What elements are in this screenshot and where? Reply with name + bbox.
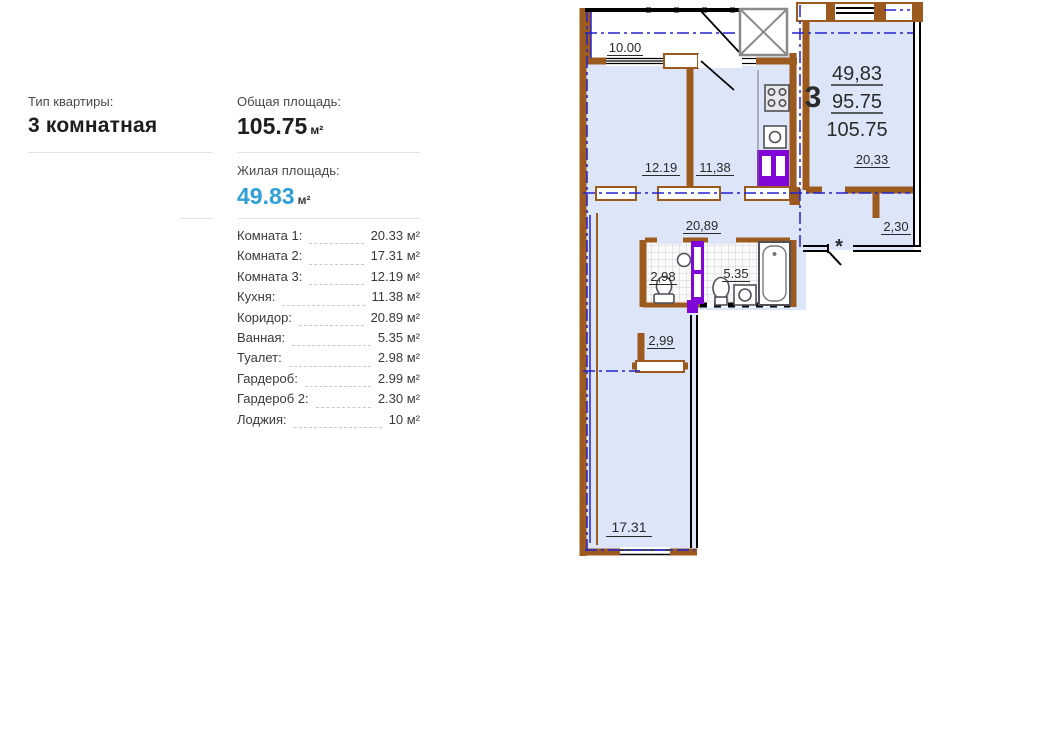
apartment-type-label: Тип квартиры:: [28, 94, 113, 109]
divider: [237, 152, 420, 153]
room-area-row: Комната 3:12.19 м²: [237, 269, 420, 289]
room-area-row: Гардероб 2:2.30 м²: [237, 391, 420, 411]
room-area-row: Лоджия:10 м²: [237, 412, 420, 432]
heated-area-plan-label: 95.75: [832, 91, 882, 113]
loggia-area-label: 10.00: [609, 40, 642, 55]
room-value: 2.30 м²: [378, 391, 420, 406]
room-area-row: Туалет:2.98 м²: [237, 350, 420, 370]
dot-leader: [316, 407, 371, 408]
dot-leader: [309, 243, 363, 244]
room-label: Лоджия:: [237, 412, 287, 427]
room1-area-label: 20,33: [856, 152, 889, 167]
total-area-value: 105.75м²: [237, 113, 323, 140]
room-value: 5.35 м²: [378, 330, 420, 345]
kitchen-sink-icon: [764, 126, 786, 148]
dot-leader: [305, 386, 371, 387]
corner-sink-icon: [678, 254, 691, 267]
flat-number-label: 3: [805, 81, 822, 114]
room-value: 2.98 м²: [378, 350, 420, 365]
shaft-square: [740, 9, 787, 55]
room-label: Комната 1:: [237, 228, 302, 243]
living-area-value: 49.83м²: [237, 183, 310, 210]
room-label: Гардероб:: [237, 371, 298, 386]
dot-leader: [309, 264, 363, 265]
room-area-row: Кухня:11.38 м²: [237, 289, 420, 309]
floor-plan: 10.00 12.19 11,38 20,89 2,98 5.35 2,99 1…: [575, 0, 925, 578]
wardrobe2-area-label: 2,30: [883, 219, 908, 234]
room-label: Кухня:: [237, 289, 275, 304]
dot-leader: [294, 427, 382, 428]
total-area-unit: м²: [310, 123, 323, 137]
room-area-row: Коридор:20.89 м²: [237, 310, 420, 330]
room-value: 17.31 м²: [371, 248, 420, 263]
stove-icon: [765, 85, 789, 111]
corridor-door: [687, 300, 698, 313]
room-value: 10 м²: [389, 412, 420, 427]
dot-leader: [299, 325, 364, 326]
door-sill: [636, 361, 684, 372]
divider: [28, 152, 213, 153]
room-value: 2.99 м²: [378, 371, 420, 386]
room-value: 12.19 м²: [371, 269, 420, 284]
room-value: 20.89 м²: [371, 310, 420, 325]
room-label: Комната 3:: [237, 269, 302, 284]
living-area-plan-label: 49,83: [832, 63, 882, 85]
room-label: Коридор:: [237, 310, 292, 325]
divider: [237, 218, 420, 219]
bath-area-label: 5.35: [723, 266, 748, 281]
total-area-plan-label: 105.75: [826, 119, 887, 141]
washer-icon: [734, 285, 756, 305]
room-area-row: Ванная:5.35 м²: [237, 330, 420, 350]
dot-leader: [309, 284, 363, 285]
room-label: Комната 2:: [237, 248, 302, 263]
room-areas-list: Комната 1:20.33 м²Комната 2:17.31 м²Комн…: [237, 228, 420, 432]
room-value: 20.33 м²: [371, 228, 420, 243]
corridor-area-label: 20,89: [686, 218, 719, 233]
living-area-label: Жилая площадь:: [237, 163, 340, 178]
apartment-type-value: 3 комнатная: [28, 114, 157, 138]
toilet-area-label: 2,98: [650, 269, 675, 284]
bottom-window: [620, 547, 670, 558]
room-area-row: Комната 2:17.31 м²: [237, 248, 420, 268]
kitchen-area-label: 11,38: [699, 160, 731, 175]
dot-leader: [289, 366, 371, 367]
living-area-unit: м²: [298, 193, 311, 207]
room-label: Гардероб 2:: [237, 391, 309, 406]
total-area-label: Общая площадь:: [237, 94, 341, 109]
room-label: Ванная:: [237, 330, 285, 345]
room-area-row: Комната 1:20.33 м²: [237, 228, 420, 248]
divider-short: [180, 218, 213, 219]
room3-area-label: 12.19: [645, 160, 678, 175]
wardrobe-area-label: 2,99: [648, 333, 673, 348]
apartment-card: Тип квартиры: 3 комнатная Общая площадь:…: [0, 0, 1048, 750]
top-window-band: [797, 3, 922, 21]
room2-area-label: 17.31: [611, 519, 646, 535]
dot-leader: [282, 305, 364, 306]
dot-leader: [292, 345, 371, 346]
room-label: Туалет:: [237, 350, 282, 365]
room-area-row: Гардероб:2.99 м²: [237, 371, 420, 391]
entrance-asterisk: *: [835, 236, 843, 258]
room-value: 11.38 м²: [372, 289, 420, 304]
